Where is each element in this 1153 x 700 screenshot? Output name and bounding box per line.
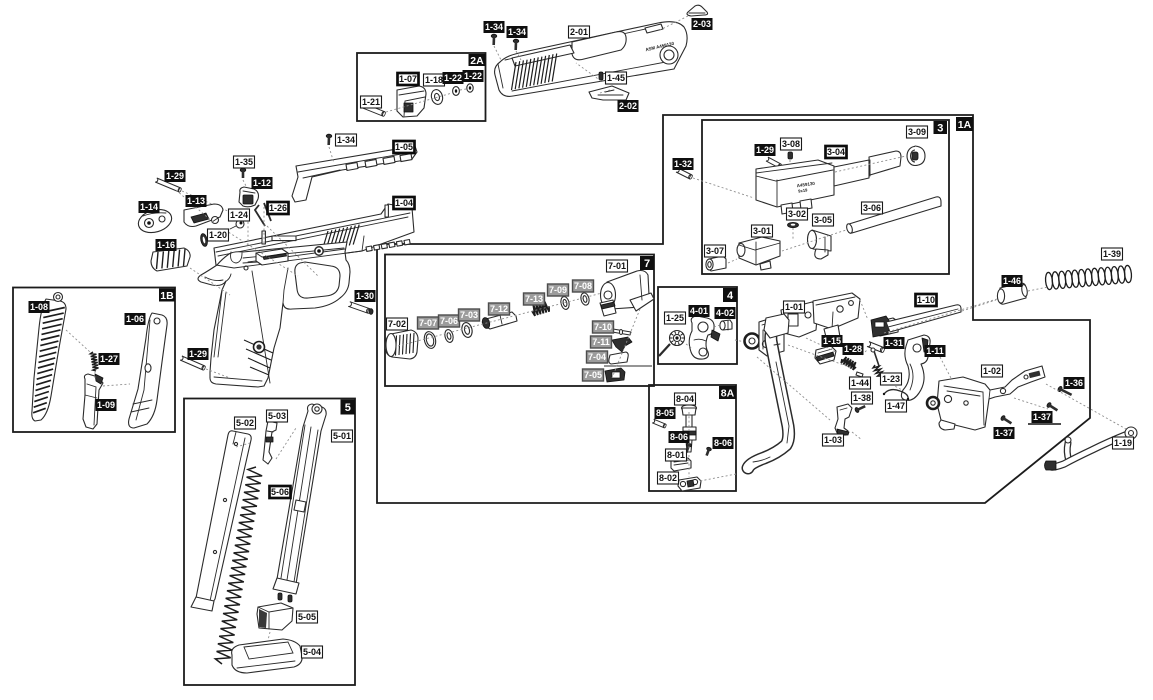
- svg-text:1-35: 1-35: [235, 157, 253, 167]
- svg-text:1-37: 1-37: [1033, 412, 1051, 422]
- svg-text:3: 3: [937, 123, 943, 135]
- svg-text:1-18: 1-18: [425, 75, 443, 85]
- svg-text:1-08: 1-08: [30, 302, 48, 312]
- svg-text:2-02: 2-02: [619, 101, 637, 111]
- svg-text:3-06: 3-06: [863, 203, 881, 213]
- svg-text:4-01: 4-01: [690, 306, 708, 316]
- svg-text:1-29: 1-29: [756, 145, 774, 155]
- svg-text:8-04: 8-04: [676, 394, 694, 404]
- svg-text:1-10: 1-10: [917, 295, 935, 305]
- svg-text:1-45: 1-45: [607, 73, 625, 83]
- svg-text:1-46: 1-46: [1003, 276, 1021, 286]
- svg-text:1-12: 1-12: [253, 178, 271, 188]
- svg-text:1-31: 1-31: [885, 338, 903, 348]
- svg-text:1-34: 1-34: [485, 22, 503, 32]
- svg-text:1-23: 1-23: [882, 374, 900, 384]
- svg-text:1-22: 1-22: [444, 73, 462, 83]
- svg-text:1-36: 1-36: [1065, 378, 1083, 388]
- svg-text:7-07: 7-07: [419, 318, 437, 328]
- svg-text:1-20: 1-20: [209, 230, 227, 240]
- svg-text:4-02: 4-02: [716, 308, 734, 318]
- svg-text:5-04: 5-04: [303, 647, 321, 657]
- svg-text:1-34: 1-34: [337, 135, 355, 145]
- svg-text:1-24: 1-24: [230, 210, 248, 220]
- svg-text:7-10: 7-10: [594, 322, 612, 332]
- svg-text:3-04: 3-04: [827, 147, 845, 157]
- svg-text:1-37: 1-37: [995, 428, 1013, 438]
- svg-text:8-06: 8-06: [714, 438, 732, 448]
- svg-text:1-47: 1-47: [887, 401, 905, 411]
- svg-text:1-34: 1-34: [508, 27, 526, 37]
- svg-text:1-22: 1-22: [464, 71, 482, 81]
- svg-text:1-19: 1-19: [1114, 438, 1132, 448]
- svg-text:5-01: 5-01: [333, 431, 351, 441]
- svg-text:1-28: 1-28: [844, 344, 862, 354]
- svg-text:1-29: 1-29: [189, 349, 207, 359]
- svg-text:8-01: 8-01: [667, 450, 685, 460]
- svg-text:5-06: 5-06: [271, 487, 289, 497]
- svg-text:1-39: 1-39: [1103, 249, 1121, 259]
- svg-text:7-05: 7-05: [584, 370, 602, 380]
- svg-text:1-05: 1-05: [395, 142, 413, 152]
- svg-text:4: 4: [727, 290, 734, 302]
- svg-text:7: 7: [644, 258, 650, 270]
- svg-text:7-11: 7-11: [592, 337, 610, 347]
- svg-text:2-03: 2-03: [693, 19, 711, 29]
- svg-text:7-02: 7-02: [388, 319, 406, 329]
- svg-text:2A: 2A: [470, 55, 484, 67]
- svg-text:7-03: 7-03: [460, 310, 478, 320]
- svg-text:8-02: 8-02: [659, 473, 677, 483]
- svg-text:7-06: 7-06: [440, 316, 458, 326]
- svg-text:8-05: 8-05: [656, 408, 674, 418]
- svg-text:1B: 1B: [160, 290, 174, 302]
- svg-text:7-13: 7-13: [525, 294, 543, 304]
- svg-text:1-06: 1-06: [126, 314, 144, 324]
- svg-text:1-29: 1-29: [166, 171, 184, 181]
- svg-text:7-04: 7-04: [588, 352, 606, 362]
- svg-text:1-15: 1-15: [823, 336, 841, 346]
- svg-text:1-32: 1-32: [674, 159, 692, 169]
- svg-text:3-07: 3-07: [706, 246, 724, 256]
- svg-text:1-02: 1-02: [983, 366, 1001, 376]
- svg-text:5: 5: [345, 402, 351, 414]
- svg-text:1-44: 1-44: [851, 378, 869, 388]
- svg-text:7-12: 7-12: [490, 304, 508, 314]
- svg-text:1-07: 1-07: [399, 74, 417, 84]
- svg-text:3-01: 3-01: [753, 226, 771, 236]
- svg-text:7-09: 7-09: [549, 285, 567, 295]
- svg-text:1-11: 1-11: [926, 346, 944, 356]
- svg-text:5-05: 5-05: [298, 612, 316, 622]
- svg-text:2-01: 2-01: [570, 27, 588, 37]
- svg-text:1-04: 1-04: [395, 198, 413, 208]
- svg-text:1-14: 1-14: [140, 202, 158, 212]
- svg-text:1-25: 1-25: [666, 313, 684, 323]
- svg-text:8A: 8A: [721, 387, 735, 399]
- svg-text:1A: 1A: [958, 119, 972, 131]
- svg-text:1-01: 1-01: [785, 302, 803, 312]
- svg-text:3-05: 3-05: [814, 215, 832, 225]
- svg-text:1-03: 1-03: [824, 435, 842, 445]
- svg-text:5-02: 5-02: [236, 418, 254, 428]
- svg-text:3-02: 3-02: [788, 209, 806, 219]
- svg-text:3-08: 3-08: [782, 139, 800, 149]
- svg-text:1-26: 1-26: [269, 203, 287, 213]
- svg-text:1-38: 1-38: [853, 393, 871, 403]
- svg-text:5-03: 5-03: [268, 411, 286, 421]
- svg-text:7-08: 7-08: [574, 281, 592, 291]
- svg-text:1-27: 1-27: [100, 354, 118, 364]
- svg-text:8-06: 8-06: [670, 432, 688, 442]
- svg-text:3-09: 3-09: [908, 127, 926, 137]
- svg-text:1-16: 1-16: [157, 240, 175, 250]
- svg-text:1-21: 1-21: [362, 97, 380, 107]
- svg-text:7-01: 7-01: [608, 261, 626, 271]
- svg-text:1-13: 1-13: [187, 196, 205, 206]
- svg-text:1-09: 1-09: [97, 400, 115, 410]
- svg-text:1-30: 1-30: [356, 291, 374, 301]
